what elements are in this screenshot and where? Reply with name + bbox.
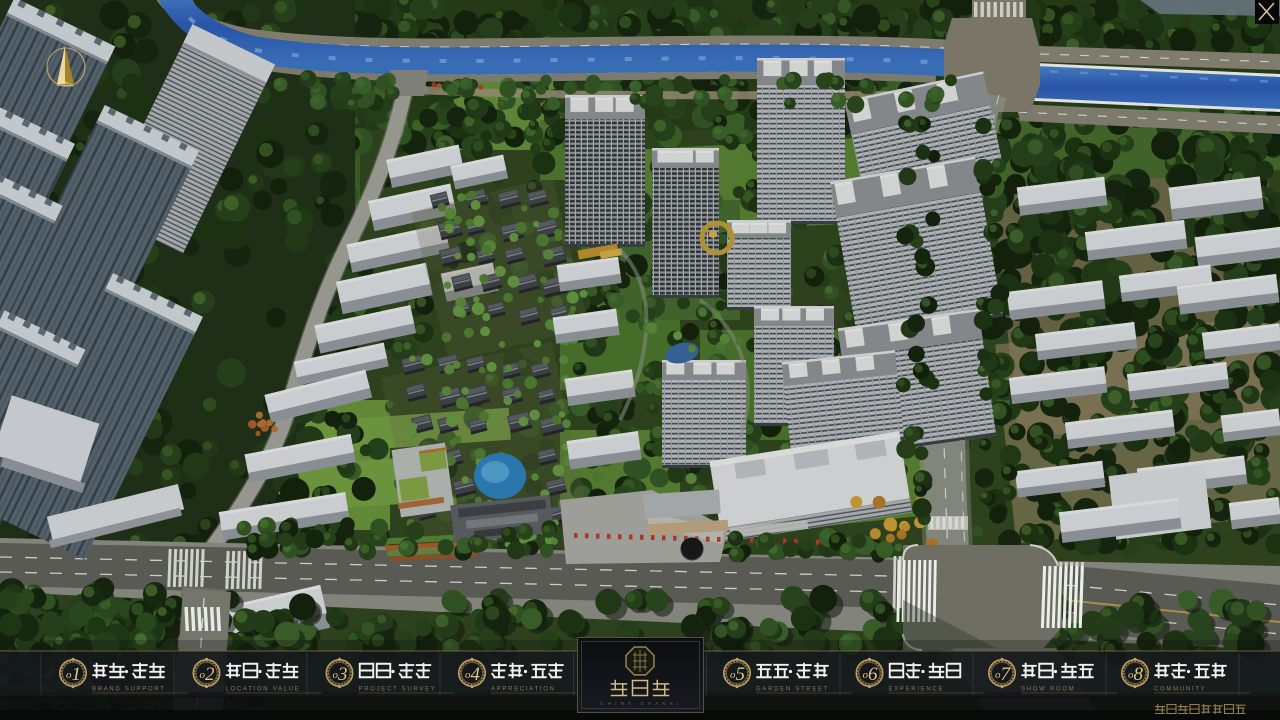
svg-text:GARDEN STREET: GARDEN STREET <box>756 687 829 693</box>
svg-text:C H I N A · S H A N X I: C H I N A · S H A N X I <box>600 701 680 706</box>
svg-text:2: 2 <box>205 664 215 685</box>
svg-text:7: 7 <box>1001 664 1012 685</box>
svg-text:5: 5 <box>736 664 746 685</box>
svg-text:COMMUNITY: COMMUNITY <box>1154 687 1206 693</box>
svg-text:LOCATION VALUE: LOCATION VALUE <box>226 687 301 693</box>
svg-text:APPRECIATION: APPRECIATION <box>491 687 556 693</box>
svg-text:6: 6 <box>868 664 878 685</box>
svg-text:SHOW ROOM: SHOW ROOM <box>1021 687 1075 693</box>
svg-text:3: 3 <box>337 664 348 685</box>
svg-text:8: 8 <box>1134 664 1144 685</box>
svg-text:BRAND SUPPORT: BRAND SUPPORT <box>92 687 166 693</box>
svg-text:1: 1 <box>72 664 82 685</box>
svg-text:EXPERIENCE: EXPERIENCE <box>889 687 945 693</box>
svg-text:PROJECT SURVEY: PROJECT SURVEY <box>359 687 437 693</box>
svg-text:4: 4 <box>471 664 481 685</box>
